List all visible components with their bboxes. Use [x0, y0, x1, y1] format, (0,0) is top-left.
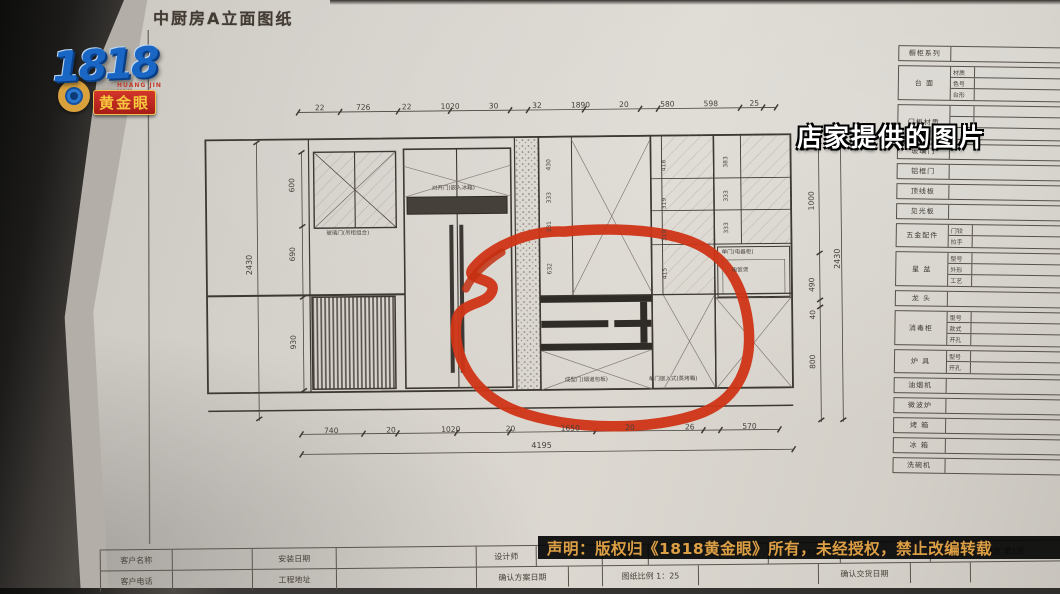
dim-segment: 600 — [286, 152, 300, 217]
spec-sub-row: 工艺 — [948, 275, 1060, 288]
spec-sub-value — [973, 236, 1060, 248]
footer-cell — [911, 562, 971, 583]
spec-row-label: 油烟机 — [895, 378, 947, 393]
dim-label: 600 — [289, 178, 297, 192]
spec-value — [946, 419, 1060, 435]
footer-cell — [173, 549, 253, 570]
dim-segment: 430 — [543, 146, 554, 183]
footer-cell: 安装日期 — [253, 548, 337, 569]
dims-left-total: 2430 — [246, 255, 254, 275]
dim-segment: 22 — [298, 103, 342, 111]
spec-sub-value — [971, 323, 1060, 334]
spec-value — [949, 205, 1060, 221]
spec-row: 龙 头 — [895, 290, 1060, 308]
dim-label: 1020 — [441, 102, 460, 110]
dim-segment: 580 — [646, 100, 690, 108]
spec-row: 油烟机 — [894, 377, 1060, 395]
footer-cell — [699, 564, 819, 585]
spec-row-values — [949, 205, 1060, 221]
spec-row-values: 型号开孔 — [947, 351, 1060, 375]
footer-cell: 客户电话 — [101, 571, 173, 592]
dim-segment: 20 — [361, 426, 421, 434]
dim-segment: 22 — [385, 103, 429, 111]
logo-badge: 黄金眼 — [93, 90, 156, 115]
dim-segment: 418 — [658, 145, 669, 188]
dim-segment: 1000 — [804, 145, 818, 258]
spec-row-label: 星 盆 — [896, 252, 948, 286]
spec-row: 铝框门 — [897, 163, 1060, 181]
dim-label: 726 — [356, 103, 370, 111]
dim-label: 1890 — [571, 101, 590, 109]
dims-right-total: 2430 — [834, 249, 842, 269]
spec-row-label: 橱柜系列 — [899, 46, 951, 61]
label-appliance-door: 单门(电器柜) — [722, 250, 754, 256]
spec-row-values: 型号外形工艺 — [948, 253, 1060, 288]
spec-row-values — [950, 165, 1060, 181]
spec-row-label: 洗碗机 — [893, 458, 945, 473]
spec-sub-label: 款式 — [947, 323, 971, 333]
spec-sub-value — [972, 312, 1060, 323]
spec-row-label: 五金配件 — [897, 224, 949, 247]
footer-cell — [337, 568, 477, 589]
dim-segment: 20 — [600, 423, 660, 431]
spec-row-values — [945, 459, 1060, 475]
dim-segment: 25 — [733, 99, 777, 107]
spec-row-values: 材质色号台形 — [951, 67, 1060, 102]
dim-segment: 20 — [481, 424, 541, 432]
spec-row-label: 见光板 — [897, 204, 949, 219]
dim-label: 20 — [619, 100, 629, 108]
spec-sub-label: 开孔 — [947, 362, 971, 373]
dim-segment: 20 — [602, 100, 646, 108]
dim-segment: 740 — [301, 426, 361, 434]
footer-cell: 设计师 — [477, 546, 537, 567]
dim-label: 930 — [290, 335, 298, 349]
spec-row: 洗碗机 — [892, 457, 1060, 475]
spec-row: 顶线板 — [896, 183, 1060, 201]
spec-sub-value — [975, 78, 1060, 89]
spec-row: 五金配件门铰拉手 — [896, 223, 1060, 249]
dim-label: 415 — [662, 268, 668, 280]
spec-value — [948, 292, 1060, 308]
spec-sub-value — [973, 225, 1060, 236]
dim-label: 331 — [547, 221, 553, 233]
dim-segment: 32 — [515, 101, 559, 109]
spec-value — [950, 165, 1060, 181]
dim-segment: 632 — [544, 241, 556, 296]
spec-value — [946, 439, 1060, 455]
dim-segment: 1020 — [421, 425, 481, 433]
caption-overlay: 店家提供的图片 — [797, 118, 986, 154]
footer-cell: 确认方案日期 — [477, 567, 569, 588]
dim-label: 1650 — [561, 424, 580, 432]
dim-segment: 333 — [721, 212, 732, 244]
spec-row-values — [946, 399, 1060, 415]
dim-segment: 30 — [472, 102, 516, 110]
spec-sub-value — [974, 106, 1060, 117]
dim-label: 319 — [662, 198, 668, 210]
dim-segment: 930 — [287, 292, 301, 393]
dim-segment: 333 — [544, 183, 555, 212]
spec-value — [946, 399, 1060, 415]
spec-row: 冰 箱 — [893, 437, 1060, 455]
spec-sub-value — [974, 117, 1060, 128]
footer-cell: 客户名称 — [101, 550, 173, 571]
spec-row-label: 微波炉 — [894, 398, 946, 413]
spec-sub-value — [972, 264, 1060, 275]
label-rice-cooker: 电饭煲 — [732, 268, 749, 274]
spec-row: 消毒柜型号款式开孔 — [894, 310, 1060, 347]
dim-label: 40 — [809, 310, 817, 320]
spec-row-values: 门铰拉手 — [949, 225, 1060, 249]
spec-row-values — [946, 419, 1060, 435]
dim-segment: 570 — [720, 422, 780, 430]
dim-label: 490 — [809, 278, 817, 292]
dim-segment: 26 — [660, 423, 720, 431]
dim-segment: 800 — [806, 317, 820, 407]
dim-label: 20 — [506, 425, 516, 433]
dim-label: 580 — [660, 100, 674, 108]
spec-sub-label: 色号 — [951, 78, 975, 88]
spec-sub-row: 台形 — [951, 89, 1060, 102]
footer-cell: 确认交货日期 — [819, 563, 911, 584]
dim-label: 418 — [661, 160, 667, 172]
dim-label: 740 — [324, 427, 338, 435]
dim-label: 22 — [315, 104, 325, 112]
dim-segment: 1890 — [559, 101, 603, 109]
spec-row-label: 铝框门 — [898, 164, 950, 179]
spec-sub-label: 型号 — [948, 312, 972, 322]
spec-sub-row: 开孔 — [947, 334, 1060, 347]
spec-row-label: 龙 头 — [896, 291, 948, 306]
spec-sub-value — [971, 351, 1060, 362]
spec-sub-value — [972, 253, 1060, 264]
dim-segment: 598 — [689, 99, 733, 107]
spec-row-label: 顶线板 — [897, 184, 949, 199]
spec-row: 炉 具型号开孔 — [894, 349, 1060, 375]
dim-label: 333 — [724, 222, 730, 234]
dim-label: 570 — [742, 422, 756, 430]
spec-row-label: 烤 箱 — [894, 418, 946, 433]
dim-label: 690 — [289, 247, 297, 261]
disclaimer-text: 声明：版权归《1818黄金眼》所有，未经授权，禁止改编转载 — [547, 537, 992, 559]
dim-label: 598 — [704, 100, 718, 108]
spec-sub-row: 开孔 — [947, 362, 1060, 375]
dim-label: 800 — [809, 355, 817, 369]
footer-cell — [337, 547, 477, 568]
spec-sub-label: 开孔 — [947, 334, 971, 345]
spec-sub-label: 外形 — [948, 264, 972, 274]
dims-cabinet-col3: 383333333 — [720, 144, 732, 244]
dim-label: 333 — [723, 191, 729, 203]
spec-row: 见光板 — [896, 203, 1060, 221]
dim-segment: 331 — [544, 212, 555, 241]
spec-sub-label: 台形 — [951, 89, 975, 100]
footer-cell: 工程地址 — [253, 569, 337, 590]
dim-label: 333 — [546, 192, 552, 204]
spec-row-label: 炉 具 — [895, 350, 947, 373]
dims-left: 600690930 — [286, 152, 302, 392]
spec-row-values — [946, 439, 1060, 455]
dim-label: 319 — [662, 230, 668, 242]
dim-segment: 319 — [659, 187, 670, 220]
logo-1818: 1818 HUANG JIN YAN 黄金眼 — [44, 44, 174, 119]
spec-value — [949, 185, 1060, 201]
label-flue-panel: 成型门(烟道包板) — [565, 377, 608, 383]
spec-row: 烤 箱 — [893, 417, 1060, 435]
spec-row-label: 冰 箱 — [894, 438, 946, 453]
footer-cell — [971, 561, 1060, 582]
footer-cell: 图纸比例 1：25 — [603, 565, 699, 586]
spec-row-values — [949, 185, 1060, 201]
disclaimer-bar: 声明：版权归《1818黄金眼》所有，未经授权，禁止改编转载 — [538, 536, 1060, 559]
spec-sub-value — [974, 128, 1060, 140]
spec-row-values — [948, 292, 1060, 308]
dim-segment: 319 — [659, 220, 670, 253]
dim-label: 26 — [685, 423, 695, 431]
spec-sub-label: 工艺 — [948, 275, 972, 286]
spec-sub-label: 材质 — [951, 67, 975, 77]
spec-row: 橱柜系列 — [898, 45, 1060, 63]
dim-segment: 726 — [341, 103, 385, 111]
label-built-in-oven: 单门嵌入式(蒸烤箱) — [649, 376, 698, 382]
spec-sub-value — [971, 334, 1060, 346]
dims-cabinet-col1: 430333331632 — [543, 146, 556, 296]
dim-label: 383 — [723, 156, 729, 168]
dim-segment: 690 — [286, 217, 300, 292]
dim-segment: 1020 — [428, 102, 472, 110]
spec-row-values — [947, 379, 1060, 395]
dim-segment: 1650 — [540, 424, 600, 432]
dims-right: 100049040800 — [804, 145, 820, 407]
dims-bottom-total: 4195 — [512, 442, 572, 451]
spec-sub-label: 型号 — [948, 253, 972, 263]
spec-sub-value — [975, 89, 1060, 101]
dim-label: 32 — [532, 101, 542, 109]
label-glass-cabinet: 玻璃门(吊柜组合) — [326, 231, 369, 237]
dim-label: 22 — [402, 103, 412, 111]
dim-label: 25 — [749, 99, 759, 107]
dim-label: 30 — [489, 102, 499, 110]
spec-sub-value — [975, 67, 1060, 78]
dim-label: 1000 — [808, 192, 816, 211]
spec-row: 台 面材质色号台形 — [898, 65, 1060, 102]
dim-segment: 333 — [721, 180, 732, 212]
spec-value — [945, 459, 1060, 475]
spec-row-values — [951, 47, 1060, 63]
spec-sub-row: 拉手 — [949, 236, 1060, 249]
spec-row-values: 型号款式开孔 — [947, 312, 1060, 347]
spec-row: 微波炉 — [893, 397, 1060, 415]
dim-label: 20 — [386, 426, 396, 434]
dim-label: 430 — [546, 159, 552, 171]
dim-segment: 490 — [806, 257, 820, 312]
dim-label: 20 — [625, 423, 635, 431]
spec-table: 橱柜系列台 面材质色号台形门板材质玻璃门铝框门顶线板见光板五金配件门铰拉手星 盆… — [892, 45, 1060, 479]
spec-sub-value — [971, 362, 1060, 374]
spec-row-label: 消毒柜 — [895, 311, 947, 345]
footer-cell — [569, 566, 603, 586]
spec-sub-value — [972, 275, 1060, 287]
dim-label: 1020 — [441, 425, 460, 433]
dims-cabinet-col2: 418319319415 — [658, 145, 671, 295]
spec-sub-label: 型号 — [947, 351, 971, 361]
dim-label: 632 — [547, 263, 553, 275]
spec-sub-label — [950, 106, 974, 116]
spec-row-label: 台 面 — [899, 66, 951, 100]
spec-value — [947, 379, 1060, 395]
spec-sub-label: 拉手 — [949, 236, 973, 247]
dim-segment: 383 — [720, 144, 731, 181]
spec-sub-label: 门铰 — [949, 225, 973, 235]
spec-value — [951, 47, 1060, 63]
label-fridge: 对开门(嵌入冰箱) — [432, 186, 475, 192]
spec-row: 星 盆型号外形工艺 — [895, 251, 1060, 288]
dim-segment: 415 — [660, 252, 671, 294]
